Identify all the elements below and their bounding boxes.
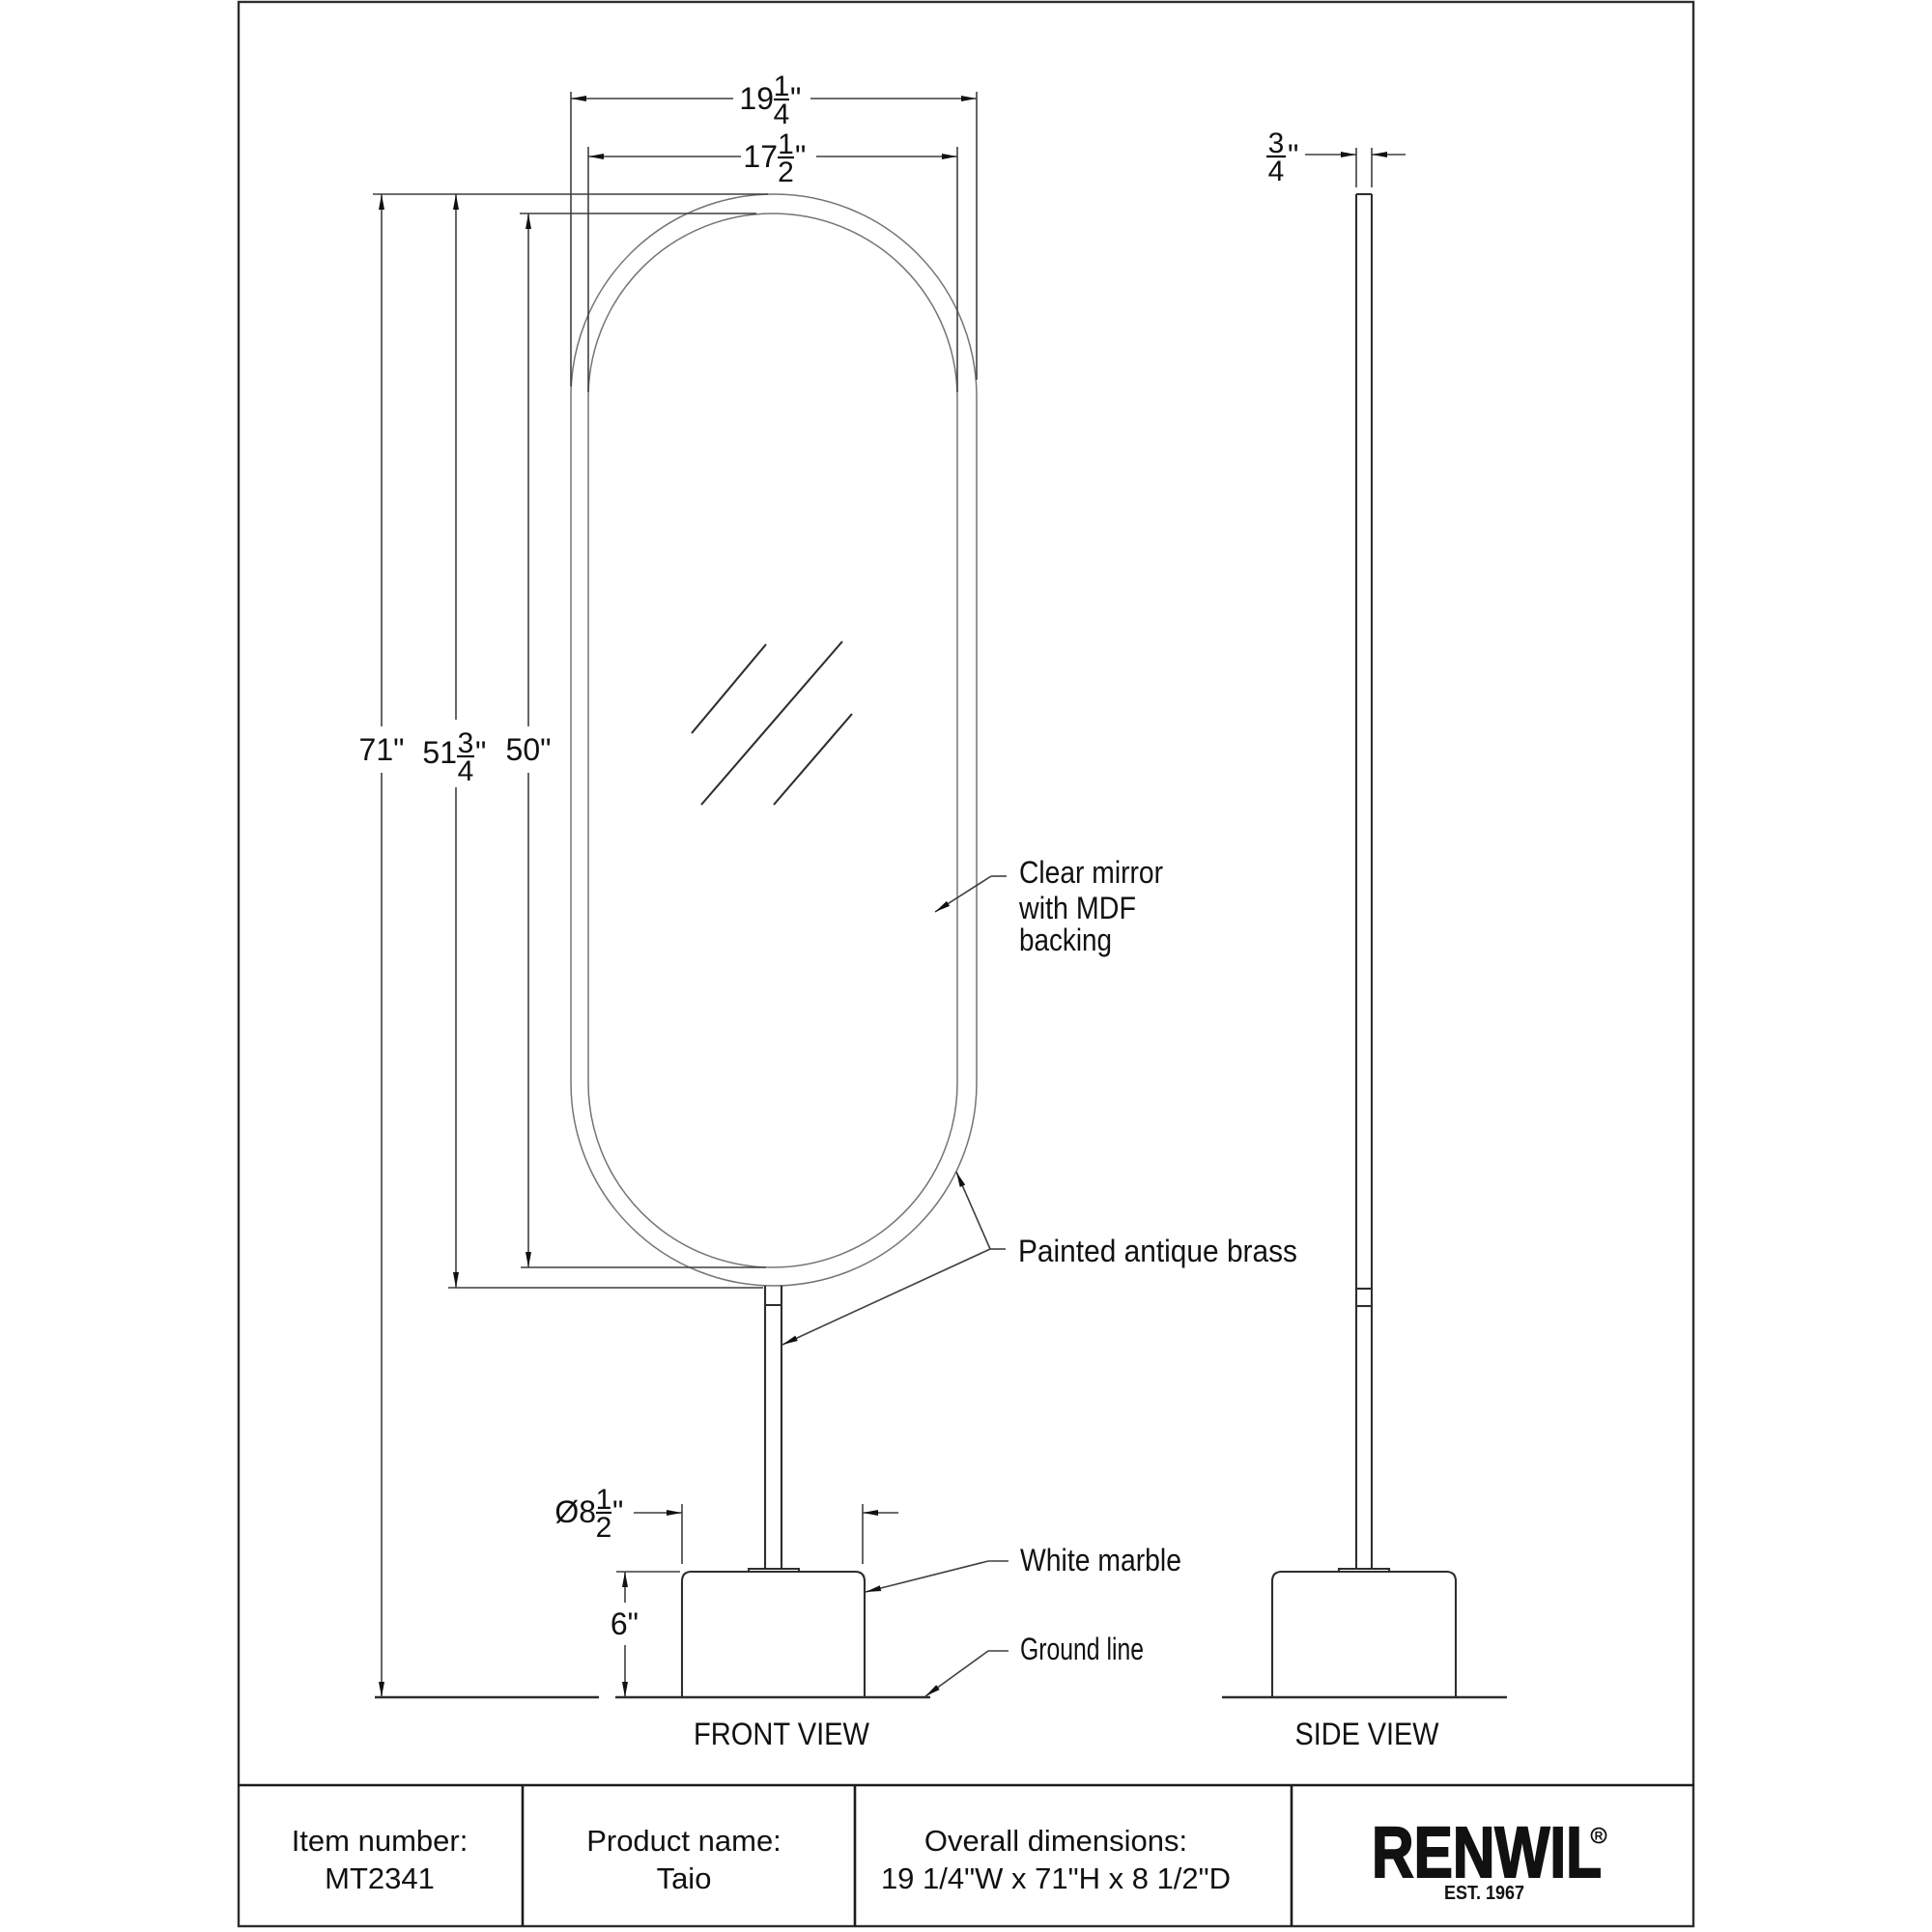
svg-text:": " (475, 735, 486, 770)
svg-text:": " (1288, 138, 1298, 173)
svg-text:Ground line: Ground line (1020, 1632, 1144, 1666)
svg-text:": " (612, 1494, 623, 1529)
svg-text:Ø8: Ø8 (554, 1494, 596, 1529)
svg-text:2: 2 (778, 156, 794, 188)
svg-text:Overall dimensions:: Overall dimensions: (924, 1824, 1187, 1858)
svg-text:Painted antique brass: Painted antique brass (1018, 1234, 1297, 1268)
svg-text:EST. 1967: EST. 1967 (1444, 1883, 1524, 1904)
svg-text:51: 51 (422, 735, 457, 770)
svg-text:2: 2 (596, 1512, 612, 1544)
svg-text:White marble: White marble (1020, 1543, 1181, 1577)
svg-text:": " (795, 139, 806, 174)
svg-text:R: R (1595, 1830, 1604, 1843)
svg-text:SIDE VIEW: SIDE VIEW (1295, 1717, 1440, 1751)
svg-text:RENWIL: RENWIL (1372, 1812, 1602, 1892)
svg-text:FRONT VIEW: FRONT VIEW (694, 1717, 870, 1751)
svg-text:Product name:: Product name: (586, 1824, 781, 1858)
svg-text:4: 4 (1268, 156, 1285, 187)
svg-text:with MDF: with MDF (1018, 891, 1136, 925)
svg-text:Clear mirror: Clear mirror (1019, 855, 1163, 890)
svg-text:17: 17 (743, 139, 778, 174)
svg-text:50": 50" (506, 732, 552, 767)
svg-text:MT2341: MT2341 (325, 1861, 435, 1895)
svg-text:Item number:: Item number: (292, 1824, 469, 1858)
svg-text:71": 71" (359, 732, 405, 767)
svg-text:Taio: Taio (657, 1861, 712, 1895)
svg-text:19 1/4"W x 71"H x 8 1/2"D: 19 1/4"W x 71"H x 8 1/2"D (881, 1861, 1231, 1895)
svg-text:": " (790, 81, 801, 116)
svg-text:4: 4 (458, 755, 474, 787)
svg-text:19: 19 (739, 81, 774, 116)
svg-text:6": 6" (611, 1606, 639, 1641)
svg-text:backing: backing (1019, 923, 1112, 957)
svg-text:4: 4 (774, 99, 790, 130)
